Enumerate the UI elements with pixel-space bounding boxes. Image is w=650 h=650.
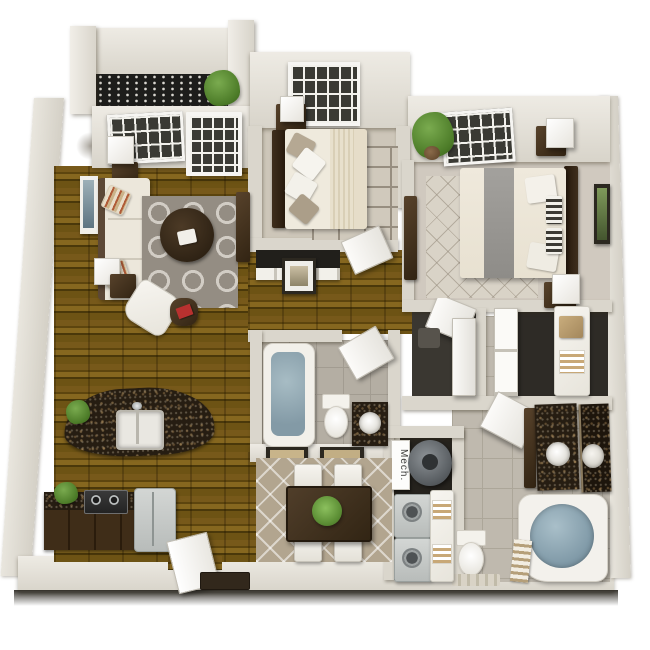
wall-hall-bath-north <box>248 330 342 342</box>
island-faucet <box>132 402 142 410</box>
balcony-back-wall <box>92 28 250 76</box>
wall-living-bedroom1 <box>248 126 262 242</box>
laundry-towels <box>432 544 452 564</box>
water-heater-cap <box>422 454 438 470</box>
bedroom2-gray-runner <box>484 168 514 278</box>
closet-storage-box <box>559 316 583 338</box>
closet-towels <box>559 350 585 374</box>
hall-bath-sink <box>359 412 381 434</box>
bedroom2-lamp <box>552 274 580 304</box>
hall-bath-toilet-bowl <box>324 406 348 438</box>
hallway-wall-art <box>282 258 316 294</box>
art-image <box>324 450 360 458</box>
wall-bath-left <box>250 330 262 456</box>
art-image <box>83 180 94 228</box>
entry-doormat <box>200 572 250 590</box>
art-image <box>597 188 607 240</box>
art-image <box>290 266 308 286</box>
washer-door <box>402 502 422 522</box>
bedroom2-closet-items <box>418 328 440 348</box>
wall-bed2closet-right <box>476 308 486 404</box>
floorplan-3d-render: Mech. <box>0 0 650 650</box>
bedroom2-striped-pillow <box>546 228 562 254</box>
island-sink <box>116 410 164 450</box>
dining-centerpiece-plant <box>312 496 342 526</box>
master-sink <box>582 444 604 468</box>
stove-burner <box>108 494 120 506</box>
balcony-plant <box>204 70 240 106</box>
bedroom2-dresser <box>404 196 417 280</box>
bedroom1-headboard <box>272 130 286 228</box>
bedroom2-headboard <box>564 166 578 278</box>
walkin-closet-doors <box>494 308 518 396</box>
living-wall-art <box>80 176 98 234</box>
bedroom2-closet-door <box>452 318 476 396</box>
bedroom2-lamp <box>546 118 574 148</box>
balcony-wall-stub-left <box>70 26 96 114</box>
bedroom2-wall-art <box>594 184 610 244</box>
refrigerator-handle <box>152 492 154 546</box>
balcony-french-door <box>186 112 242 176</box>
hall-bath-tub-water <box>271 352 305 436</box>
stove-burner <box>90 494 102 506</box>
bedroom2-plant-pot <box>424 146 440 160</box>
bedroom1-throw <box>330 129 354 229</box>
master-toilet-bowl <box>458 542 484 576</box>
bedroom2-striped-pillow <box>546 196 562 224</box>
art-image <box>270 450 304 458</box>
master-tub-water <box>530 504 594 568</box>
kitchen-plant <box>54 482 78 504</box>
media-console <box>236 192 250 262</box>
ground-shadow <box>14 590 618 606</box>
island-sink-divider <box>136 412 139 444</box>
bath-mat <box>452 574 500 586</box>
island-plant <box>66 400 90 424</box>
table-lamp <box>107 136 134 164</box>
bedroom1-lamp <box>280 96 304 122</box>
wall-mech-north <box>384 426 464 438</box>
laundry-towels <box>432 500 452 520</box>
dryer-door <box>402 548 422 568</box>
master-sink <box>546 442 570 466</box>
